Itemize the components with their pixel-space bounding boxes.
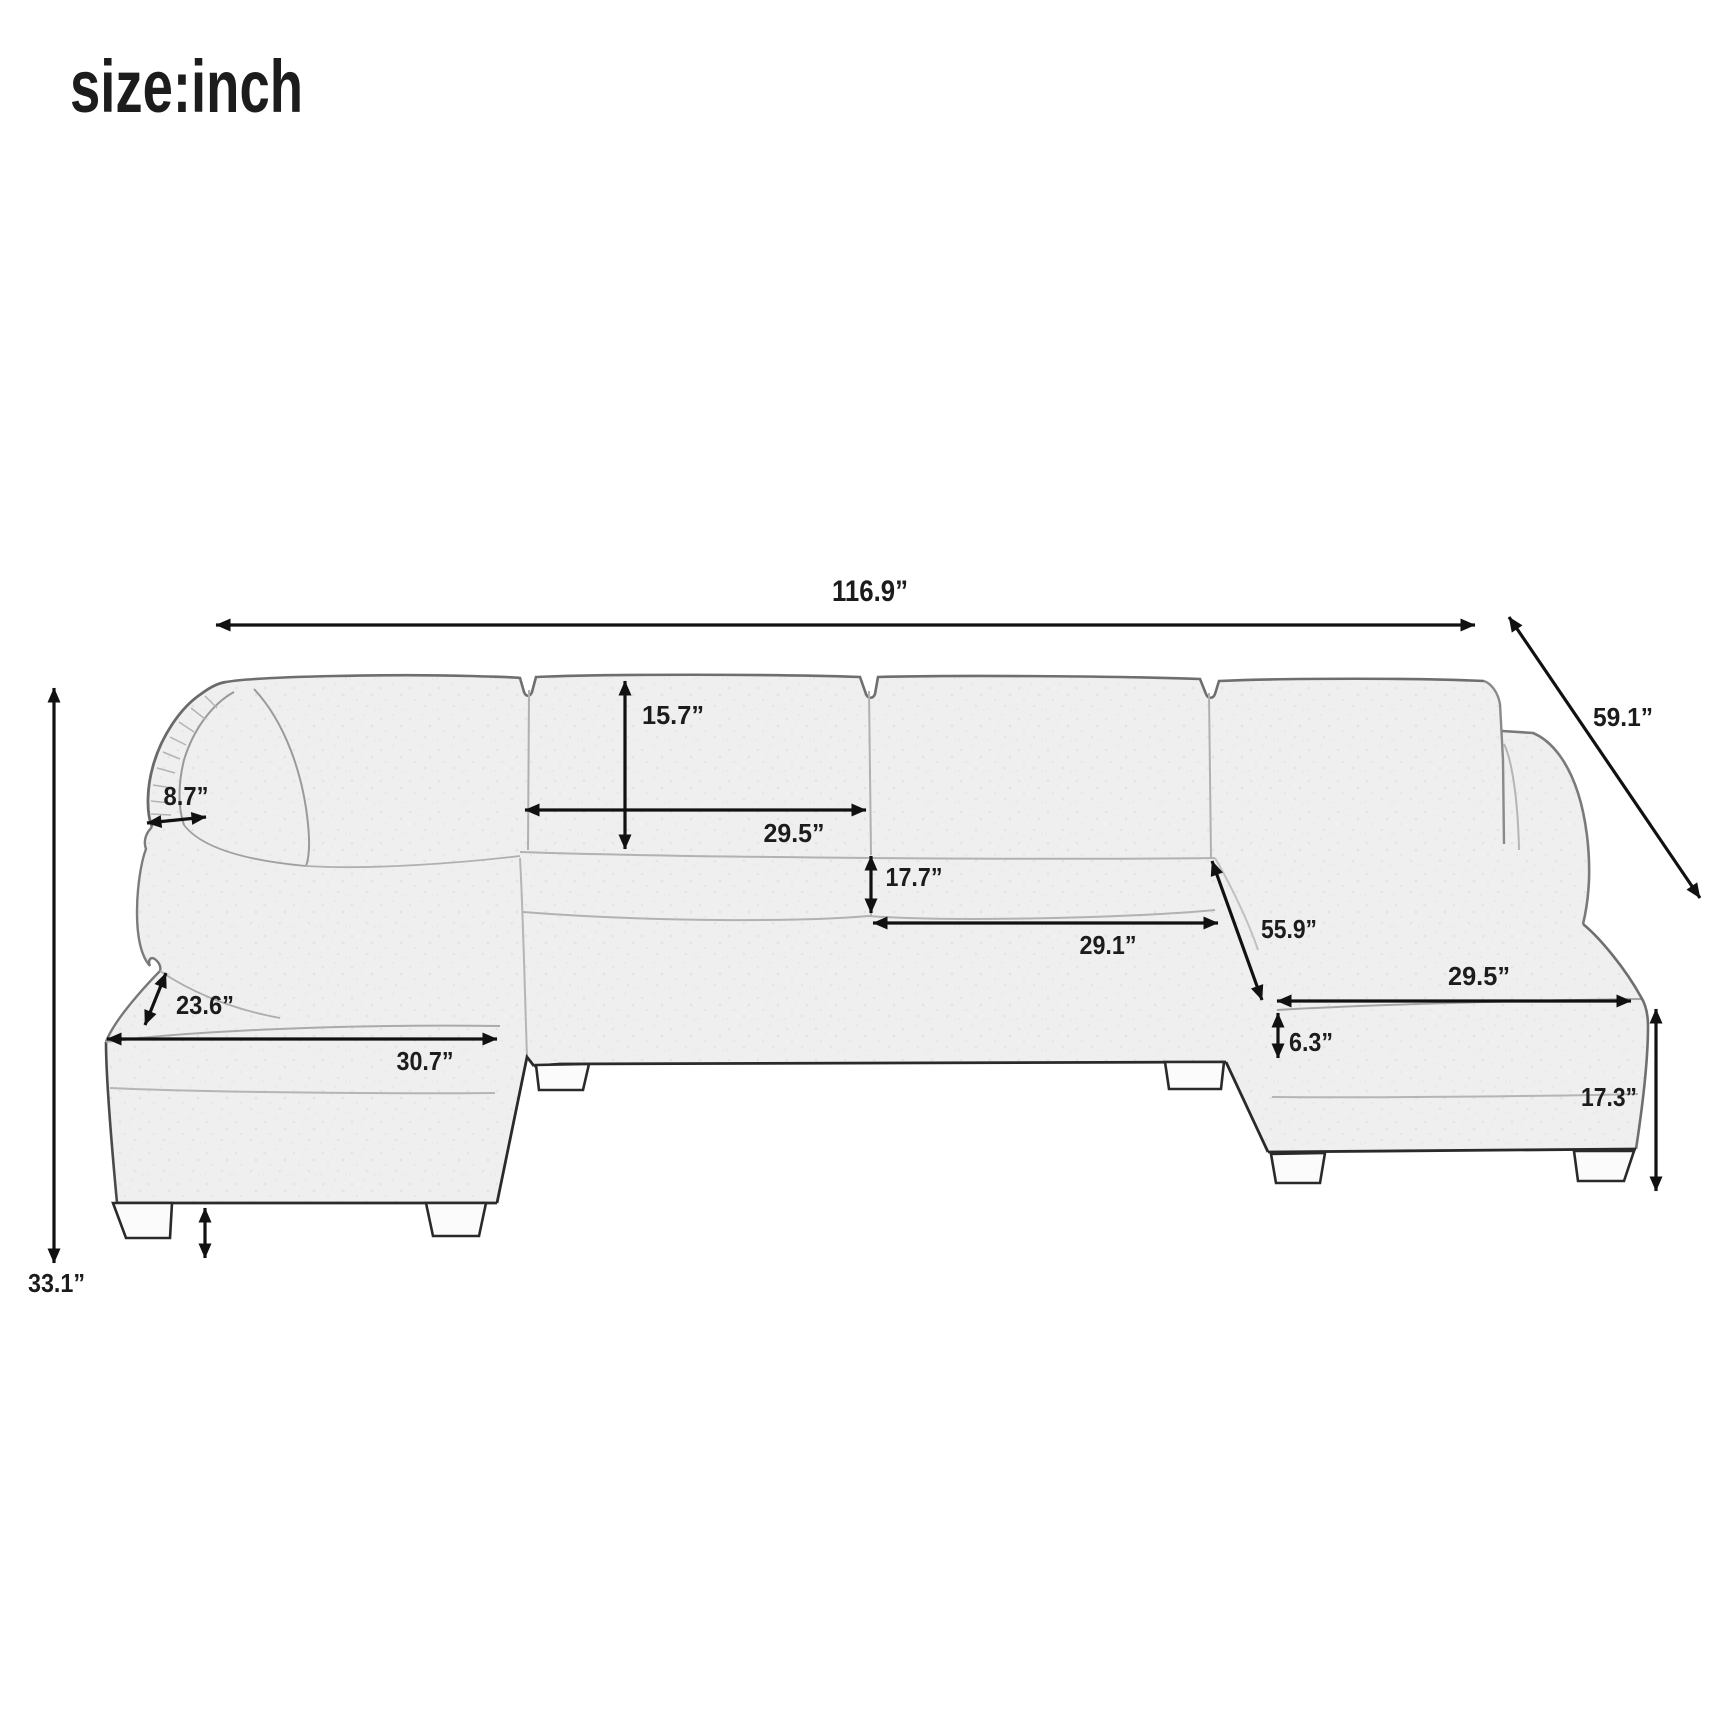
svg-text:17.3”: 17.3” [1581, 1084, 1637, 1112]
svg-text:15.7”: 15.7” [642, 702, 704, 730]
svg-text:29.5”: 29.5” [764, 820, 825, 848]
svg-text:29.1”: 29.1” [1080, 932, 1137, 960]
svg-text:8.7”: 8.7” [164, 783, 209, 811]
svg-text:23.6”: 23.6” [176, 992, 234, 1020]
svg-text:30.7”: 30.7” [397, 1048, 454, 1076]
svg-text:33.1”: 33.1” [28, 1270, 85, 1298]
svg-text:59.1”: 59.1” [1593, 704, 1653, 732]
svg-text:29.5”: 29.5” [1448, 963, 1510, 991]
svg-text:116.9”: 116.9” [832, 575, 908, 608]
svg-text:size:inch: size:inch [70, 45, 303, 128]
svg-text:6.3”: 6.3” [1289, 1029, 1333, 1057]
svg-text:55.9”: 55.9” [1261, 916, 1317, 944]
svg-text:17.7”: 17.7” [886, 864, 943, 892]
